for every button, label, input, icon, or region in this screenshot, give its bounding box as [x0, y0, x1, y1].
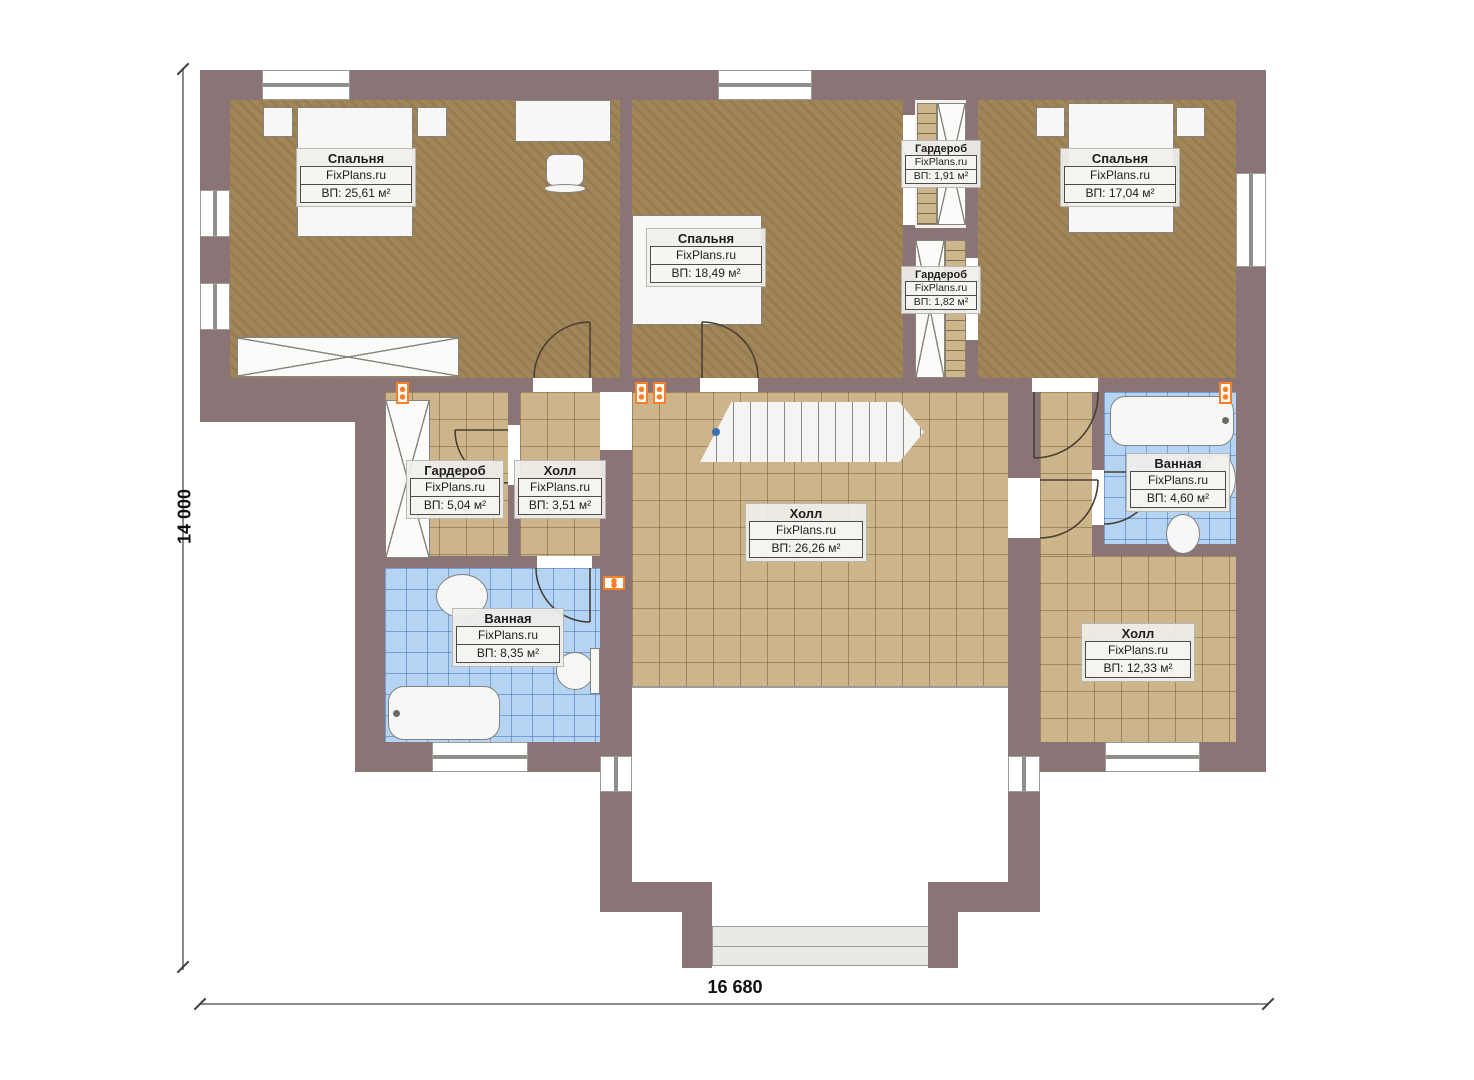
door-opening-bathroom-left — [537, 556, 592, 568]
brand: FixPlans.ru — [905, 155, 977, 170]
room-name: Спальня — [650, 231, 762, 247]
nightstand-icon — [1036, 107, 1065, 137]
radiator-icon — [603, 576, 625, 590]
step-edge — [713, 946, 937, 947]
room-name: Гардероб — [410, 463, 500, 479]
window-right-bedroom — [1236, 173, 1266, 267]
wall-porch-right — [1008, 392, 1040, 912]
room-name: Гардероб — [905, 143, 977, 156]
room-area: ВП: 5,04 м² — [410, 496, 500, 515]
room-area: ВП: 4,60 м² — [1130, 489, 1226, 508]
room-label-wardrobe-upper: Гардероб FixPlans.ru ВП: 1,91 м² — [901, 140, 981, 188]
wall-porch-left-step-v — [682, 912, 712, 968]
wall-bedroom-divider-left — [620, 100, 632, 378]
room-name: Спальня — [300, 151, 412, 167]
toilet-bowl-icon — [1166, 514, 1200, 554]
room-area: ВП: 8,35 м² — [456, 644, 560, 663]
faucet-icon — [1222, 417, 1229, 424]
door-opening-hall-right — [1008, 478, 1040, 538]
wardrobe-cabinet-icon — [237, 337, 459, 377]
brand: FixPlans.ru — [1064, 166, 1176, 185]
staircase — [700, 402, 924, 462]
room-label-wardrobe-lower: Гардероб FixPlans.ru ВП: 1,82 м² — [901, 266, 981, 314]
window-left-lower — [200, 283, 230, 330]
room-name: Спальня — [1064, 151, 1176, 167]
dresser-icon — [515, 100, 611, 142]
dimension-width-label: 16 680 — [675, 977, 795, 998]
toilet-tank-icon — [590, 648, 600, 694]
room-label-wardrobe-left: Гардероб FixPlans.ru ВП: 5,04 м² — [406, 460, 504, 519]
brand: FixPlans.ru — [300, 166, 412, 185]
bathtub-icon — [388, 686, 500, 740]
faucet-icon — [393, 710, 400, 717]
floor-plan: Спальня FixPlans.ru ВП: 25,61 м² Спальня… — [0, 0, 1474, 1080]
room-label-hall-small: Холл FixPlans.ru ВП: 3,51 м² — [514, 460, 606, 519]
brand: FixPlans.ru — [1085, 641, 1191, 660]
brand: FixPlans.ru — [1130, 471, 1226, 490]
dimension-line-horizontal — [200, 1003, 1268, 1005]
door-opening-hall-small — [600, 392, 632, 450]
radiator-icon — [653, 382, 666, 404]
room-name: Холл — [518, 463, 602, 479]
room-name: Ванная — [456, 611, 560, 627]
room-name: Холл — [1085, 626, 1191, 642]
room-name: Холл — [749, 506, 863, 522]
door-opening-bathroom-right — [1092, 470, 1104, 525]
window-hall-right — [1105, 742, 1200, 772]
entrance-steps — [712, 926, 938, 966]
room-area: ВП: 17,04 м² — [1064, 184, 1176, 203]
bathtub-icon — [1110, 396, 1234, 446]
room-label-bedroom-middle: Спальня FixPlans.ru ВП: 18,49 м² — [646, 228, 766, 287]
brand: FixPlans.ru — [518, 478, 602, 497]
room-area: ВП: 1,82 м² — [905, 295, 977, 310]
room-label-hall-right: Холл FixPlans.ru ВП: 12,33 м² — [1081, 623, 1195, 682]
wall-porch-right-step-h — [928, 882, 1008, 912]
wall-bathroom-right-bottom — [1092, 544, 1236, 556]
room-label-bedroom-left: Спальня FixPlans.ru ВП: 25,61 м² — [296, 148, 416, 207]
wall-porch-left-step-h — [632, 882, 712, 912]
window-left-upper — [200, 190, 230, 237]
room-area: ВП: 26,26 м² — [749, 539, 863, 558]
window-porch-right — [1008, 756, 1040, 792]
room-label-hall-main: Холл FixPlans.ru ВП: 26,26 м² — [745, 503, 867, 562]
room-area: ВП: 12,33 м² — [1085, 659, 1191, 678]
room-name: Гардероб — [905, 269, 977, 282]
room-label-bathroom-right: Ванная FixPlans.ru ВП: 4,60 м² — [1126, 453, 1230, 512]
brand: FixPlans.ru — [410, 478, 500, 497]
window-top-middle — [718, 70, 812, 100]
nightstand-icon — [263, 107, 293, 137]
nightstand-icon — [417, 107, 447, 137]
radiator-icon — [1219, 382, 1232, 404]
brand: FixPlans.ru — [456, 626, 560, 645]
chair-icon — [546, 154, 584, 186]
wall-porch-right-step-v — [928, 912, 958, 968]
window-porch-left — [600, 756, 632, 792]
radiator-icon — [396, 382, 409, 404]
room-area: ВП: 1,91 м² — [905, 169, 977, 184]
radiator-icon — [635, 382, 648, 404]
door-opening-bedroom-middle — [700, 378, 758, 392]
brand: FixPlans.ru — [905, 281, 977, 296]
hall-open-edge — [632, 686, 1008, 688]
window-top-left — [262, 70, 350, 100]
nightstand-icon — [1176, 107, 1205, 137]
room-label-bathroom-left: Ванная FixPlans.ru ВП: 8,35 м² — [452, 608, 564, 667]
brand: FixPlans.ru — [749, 521, 863, 540]
window-bathroom-left — [432, 742, 528, 772]
wall-wardrobe-divider — [903, 228, 978, 240]
room-area: ВП: 25,61 м² — [300, 184, 412, 203]
wall-outer-left-lower — [355, 392, 385, 772]
chair-back-icon — [544, 184, 586, 193]
brand: FixPlans.ru — [650, 246, 762, 265]
door-opening-bedroom-left — [533, 378, 592, 392]
dimension-height-label: 14 000 — [175, 477, 196, 557]
room-label-bedroom-right: Спальня FixPlans.ru ВП: 17,04 м² — [1060, 148, 1180, 207]
room-name: Ванная — [1130, 456, 1226, 472]
room-area: ВП: 18,49 м² — [650, 264, 762, 283]
door-opening-bedroom-right — [1032, 378, 1098, 392]
room-area: ВП: 3,51 м² — [518, 496, 602, 515]
